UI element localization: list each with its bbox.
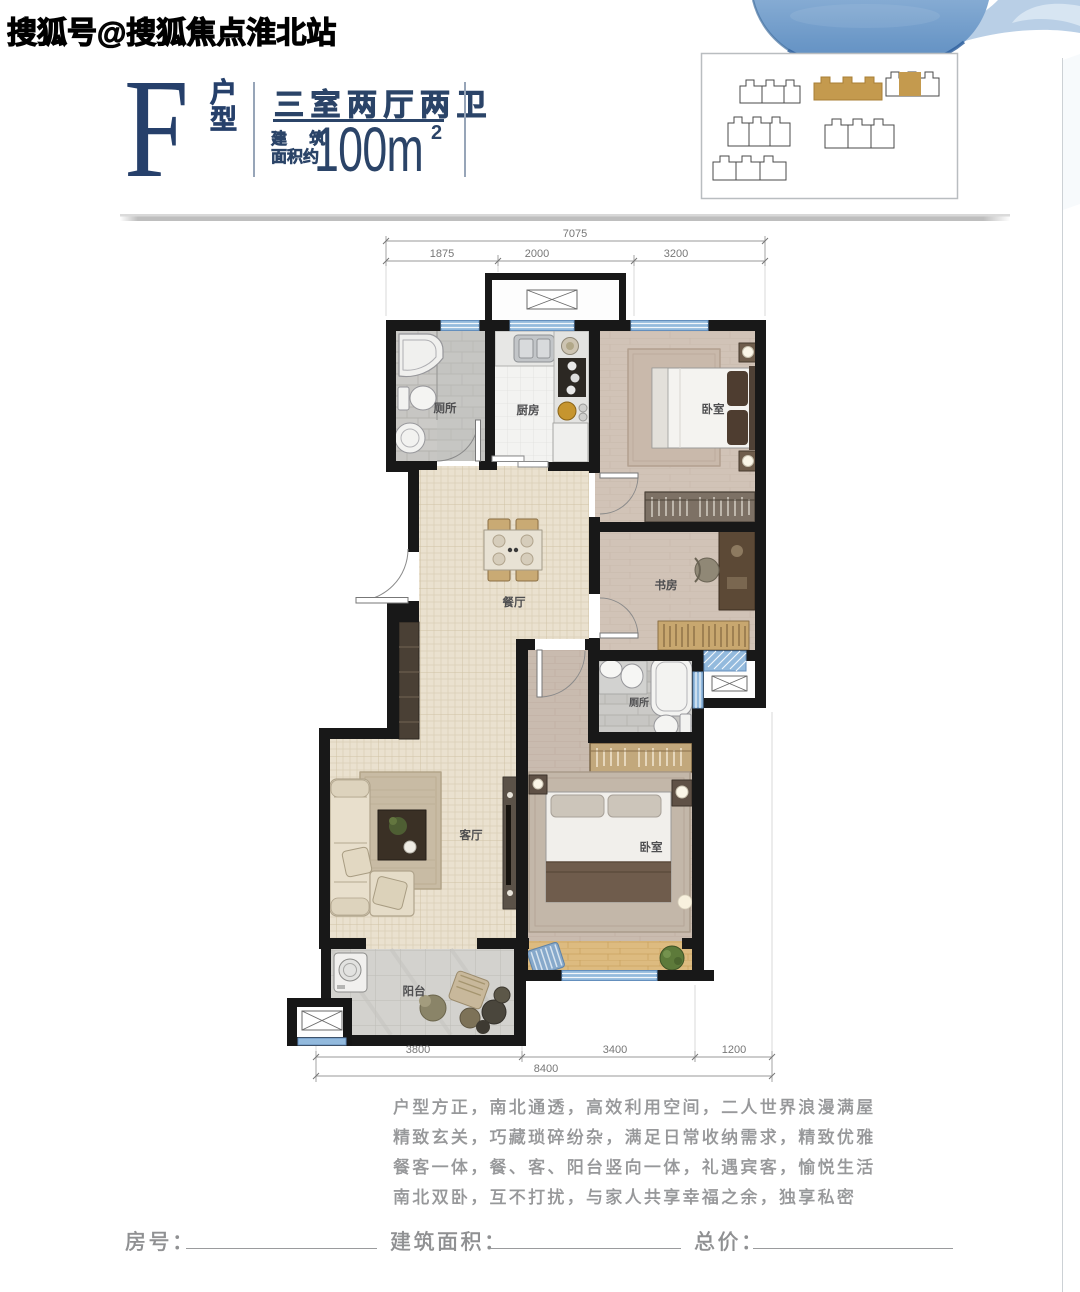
svg-text:餐厅: 餐厅	[502, 595, 526, 609]
svg-text:3400: 3400	[603, 1044, 627, 1056]
svg-text:阳台: 阳台	[403, 984, 426, 998]
svg-text:1875: 1875	[430, 248, 454, 260]
svg-text:2000: 2000	[525, 248, 549, 260]
svg-text:厕所: 厕所	[629, 696, 649, 709]
svg-text:卧室: 卧室	[640, 840, 663, 854]
svg-text:厨房: 厨房	[517, 403, 540, 417]
svg-text:7075: 7075	[563, 228, 587, 240]
svg-text:书房: 书房	[655, 578, 678, 592]
svg-text:1200: 1200	[722, 1044, 746, 1056]
svg-text:厕所: 厕所	[434, 401, 457, 415]
svg-text:客厅: 客厅	[459, 828, 483, 842]
svg-text:3800: 3800	[406, 1044, 430, 1056]
svg-text:3200: 3200	[664, 248, 688, 260]
svg-text:8400: 8400	[534, 1063, 558, 1075]
svg-text:卧室: 卧室	[702, 402, 725, 416]
